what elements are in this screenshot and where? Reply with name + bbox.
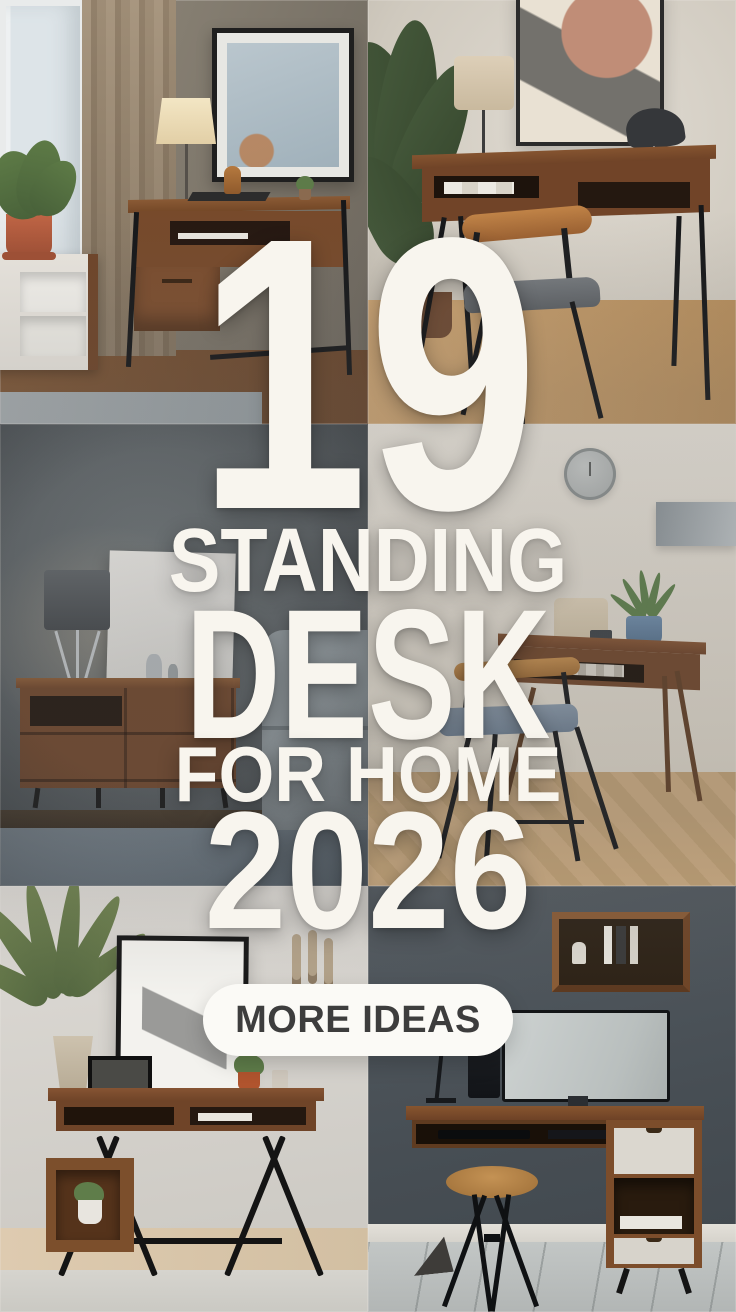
stool-seat [446, 1166, 538, 1198]
sideboard-shelf [20, 272, 86, 312]
book [620, 1216, 682, 1229]
cabinet-foot [616, 1268, 630, 1295]
lamp-shade [156, 98, 216, 144]
desk-leg [699, 205, 711, 400]
desk-lamp-base [426, 1098, 456, 1103]
desk-top [406, 1106, 704, 1120]
more-ideas-button[interactable]: MORE IDEAS [203, 984, 513, 1056]
pot-saucer [2, 252, 56, 260]
desk-device [548, 1130, 608, 1139]
stool-leg-hub [484, 1234, 500, 1242]
terracotta-pot [6, 214, 52, 256]
cabinet-drawer [614, 1128, 694, 1174]
book [198, 1113, 252, 1121]
drawer-handle [646, 1128, 662, 1133]
doorstop [410, 1236, 454, 1276]
pin-poster: 19 STANDING DESK FOR HOME 2026 MORE IDEA… [0, 0, 736, 1312]
stool-leg [472, 1194, 493, 1312]
desk-leg [671, 216, 681, 366]
desk-top [48, 1088, 324, 1101]
keyboard [438, 1130, 530, 1139]
cabinet-foot [678, 1268, 692, 1295]
drawer-handle [646, 1238, 662, 1242]
desk-x-leg [262, 1135, 324, 1276]
cube-plant-pot [78, 1200, 102, 1224]
monitor [502, 1010, 670, 1102]
sideboard-shelf [20, 316, 86, 356]
desk-open-shelf [64, 1107, 174, 1125]
cup [272, 1070, 288, 1090]
lamp-shade [454, 56, 514, 110]
headline-line-year: 2026 [44, 788, 692, 955]
